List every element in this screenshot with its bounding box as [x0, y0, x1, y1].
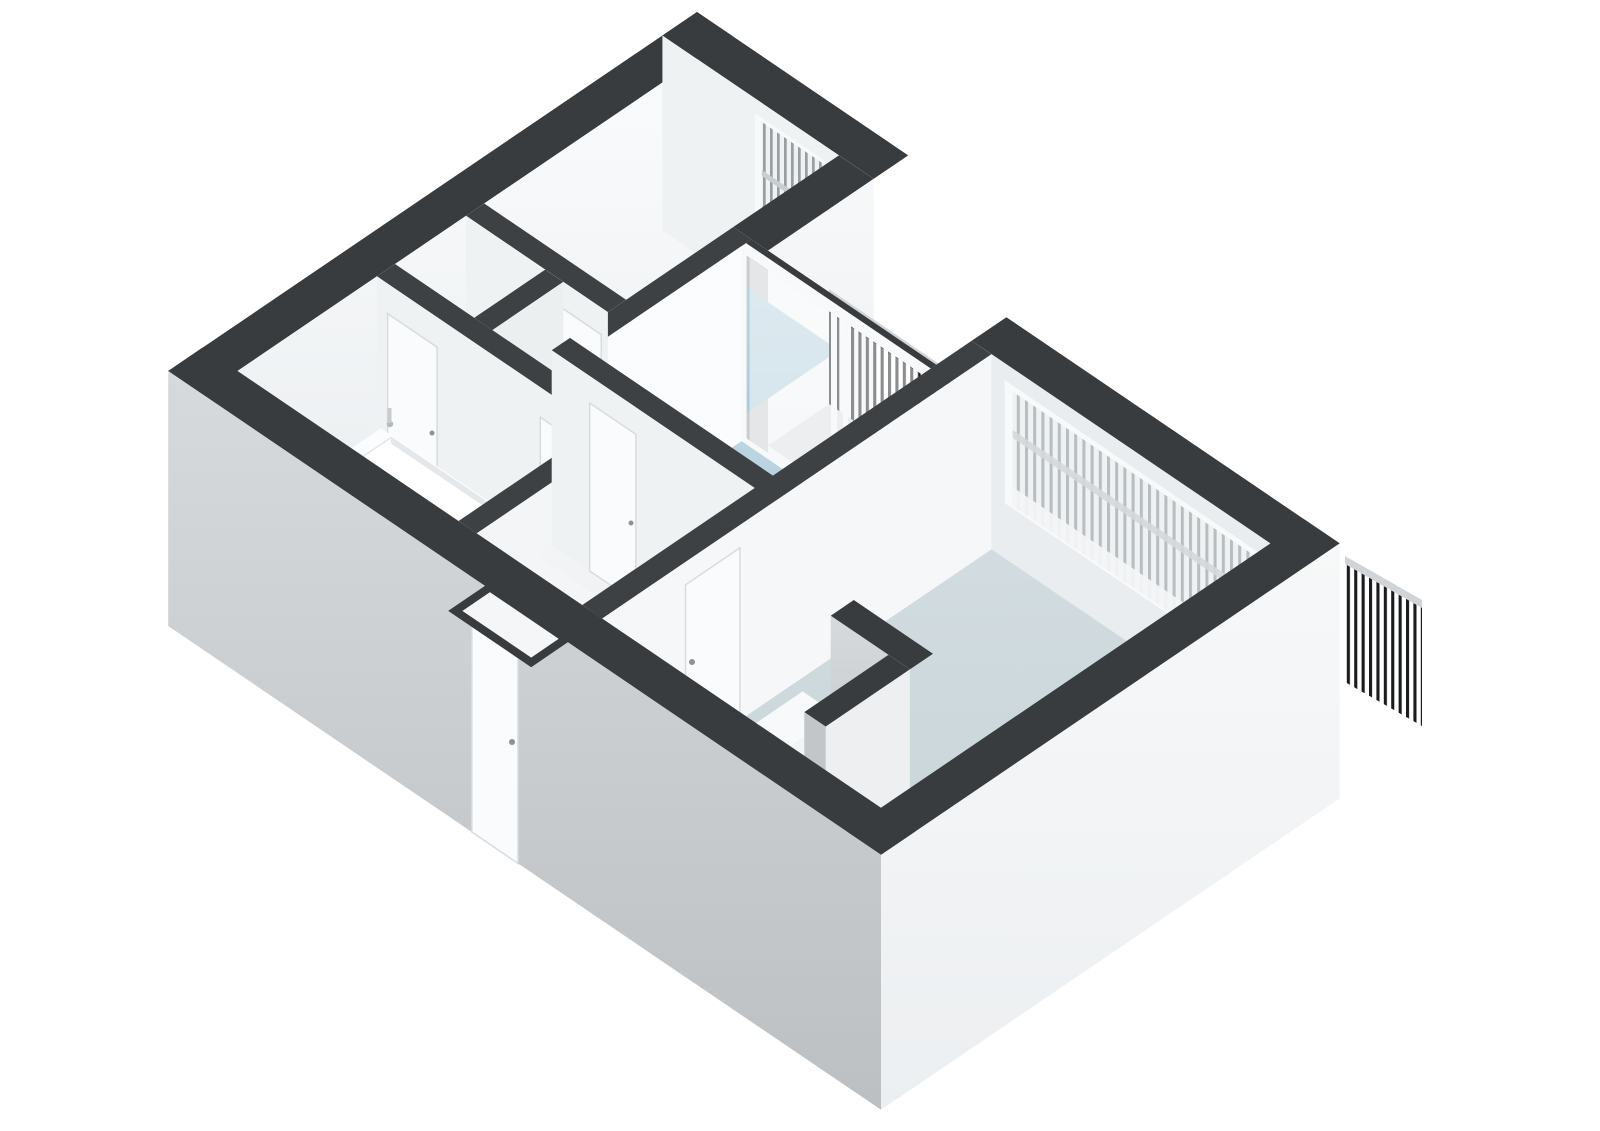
front-door-handle	[509, 739, 515, 745]
floorplan-stage	[0, 0, 1600, 1131]
door-bedroom-2	[590, 403, 636, 602]
door-handle	[430, 431, 435, 436]
bathtub-faucet-stub	[388, 408, 392, 423]
door-handle	[689, 659, 695, 665]
corner-railing-slats	[1345, 564, 1422, 726]
floorplan-3d-render	[0, 0, 1600, 1131]
corner-railing	[1345, 556, 1422, 726]
door-handle	[629, 521, 634, 526]
door-leaf	[590, 403, 636, 602]
